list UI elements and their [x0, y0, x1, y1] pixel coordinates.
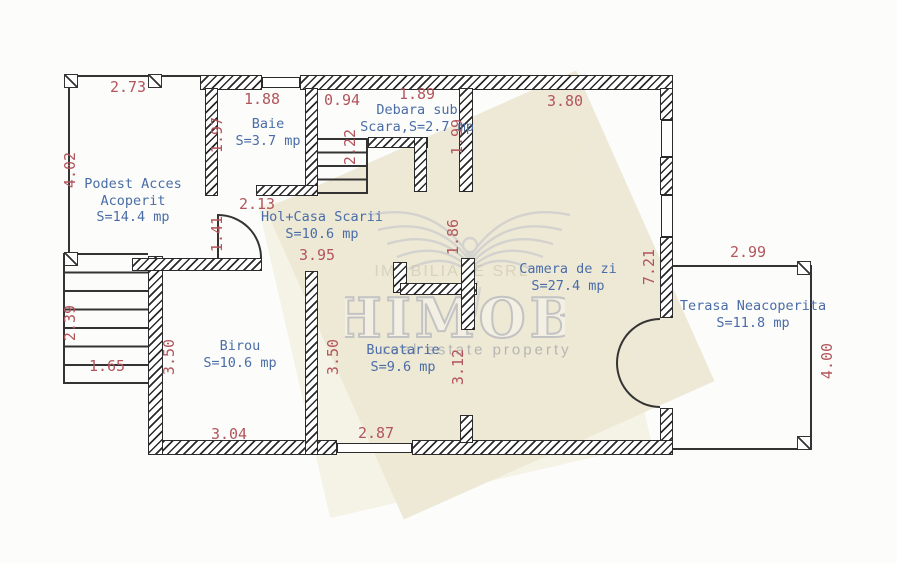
room-area: S=10.6 mp: [203, 355, 276, 371]
room-label-bucatarie: Bucatarie S=9.6 mp: [366, 342, 439, 375]
terrace-bottom-line: [673, 448, 812, 450]
room-label-debara: Debara sub Scara,S=2.7 mp: [360, 102, 474, 135]
wall-right-a: [660, 88, 673, 120]
window-right-lower: [661, 195, 673, 237]
room-area: S=3.7 mp: [235, 133, 300, 149]
dimension-label: 2.73: [110, 78, 146, 96]
corner-marker: [797, 261, 811, 275]
dimension-label: 1.89: [399, 85, 435, 103]
dimension-label: 1.97: [208, 117, 226, 153]
corner-marker: [64, 74, 78, 88]
wall-right-b: [660, 157, 673, 195]
dimension-label: 2.39: [61, 305, 79, 341]
room-name: Birou: [220, 338, 261, 354]
wall-right-c: [660, 237, 673, 318]
floor-plan: IMOBILIARE SRL HIMOB real estate propert…: [0, 0, 897, 563]
dimension-label: 3.95: [299, 246, 335, 264]
dimension-label: 4.00: [818, 343, 836, 379]
porch-top-line: [68, 75, 200, 77]
room-name: Podest Acces: [84, 176, 182, 192]
dimension-label: 3.50: [160, 339, 178, 375]
dimension-label: 3.12: [449, 349, 467, 385]
room-label-birou: Birou S=10.6 mp: [203, 338, 276, 371]
dimension-label: 3.80: [547, 92, 583, 110]
room-label-baie: Baie S=3.7 mp: [235, 116, 300, 149]
window-right-upper: [661, 120, 673, 157]
room-label-hol: Hol+Casa Scarii S=10.6 mp: [261, 209, 383, 242]
room-label-podest: Podest Acces Acoperit S=14.4 mp: [84, 176, 182, 226]
wall-birou-top: [132, 258, 262, 271]
wall-kitchen-vertical: [461, 258, 475, 330]
room-label-terasa: Terasa Neacoperita S=11.8 mp: [680, 298, 826, 331]
dimension-label: 0.94: [324, 91, 360, 109]
window-top-baie: [262, 77, 300, 88]
room-name: Baie: [252, 116, 285, 132]
corner-marker: [797, 436, 811, 450]
wall-debara-left: [414, 137, 427, 192]
svg-text:HIMOB: HIMOB: [345, 286, 565, 350]
room-area: S=27.4 mp: [531, 278, 604, 294]
room-name: Camera de zi: [519, 261, 617, 277]
terrace-right-line: [810, 265, 812, 450]
room-name: Debara sub: [376, 102, 457, 118]
room-name: Bucatarie: [366, 342, 439, 358]
window-bottom-bucatarie: [337, 443, 412, 453]
room-area: S=11.8 mp: [716, 315, 789, 331]
dimension-label: 7.21: [640, 249, 658, 285]
room-area: S=14.4 mp: [96, 209, 169, 225]
room-area: S=10.6 mp: [285, 226, 358, 242]
room-area: S=9.6 mp: [370, 359, 435, 375]
wall-birou-bucatarie: [305, 271, 318, 455]
dimension-label: 2.87: [358, 424, 394, 442]
dimension-label: 1.86: [444, 219, 462, 255]
dimension-label: 1.65: [89, 357, 125, 375]
wall-bottom-stub: [460, 415, 473, 443]
wall-top-right: [300, 75, 673, 90]
terrace-top-line: [673, 265, 812, 267]
dimension-label: 3.50: [324, 339, 342, 375]
corner-marker: [64, 252, 78, 266]
wall-stair-baie: [305, 88, 318, 190]
dimension-label: 2.22: [341, 129, 359, 165]
dimension-label: 1.41: [208, 216, 226, 252]
room-name: Hol+Casa Scarii: [261, 209, 383, 225]
room-name: Scara,S=2.7 mp: [360, 119, 474, 135]
room-label-camera-de-zi: Camera de zi S=27.4 mp: [519, 261, 617, 294]
dimension-label: 4.02: [61, 152, 79, 188]
dimension-label: 3.04: [211, 425, 247, 443]
wall-bottom-right: [412, 440, 673, 455]
dimension-label: 2.99: [730, 243, 766, 261]
room-name: Terasa Neacoperita: [680, 298, 826, 314]
room-name: Acoperit: [100, 193, 165, 209]
corner-marker: [148, 74, 162, 88]
dimension-label: 1.88: [244, 90, 280, 108]
